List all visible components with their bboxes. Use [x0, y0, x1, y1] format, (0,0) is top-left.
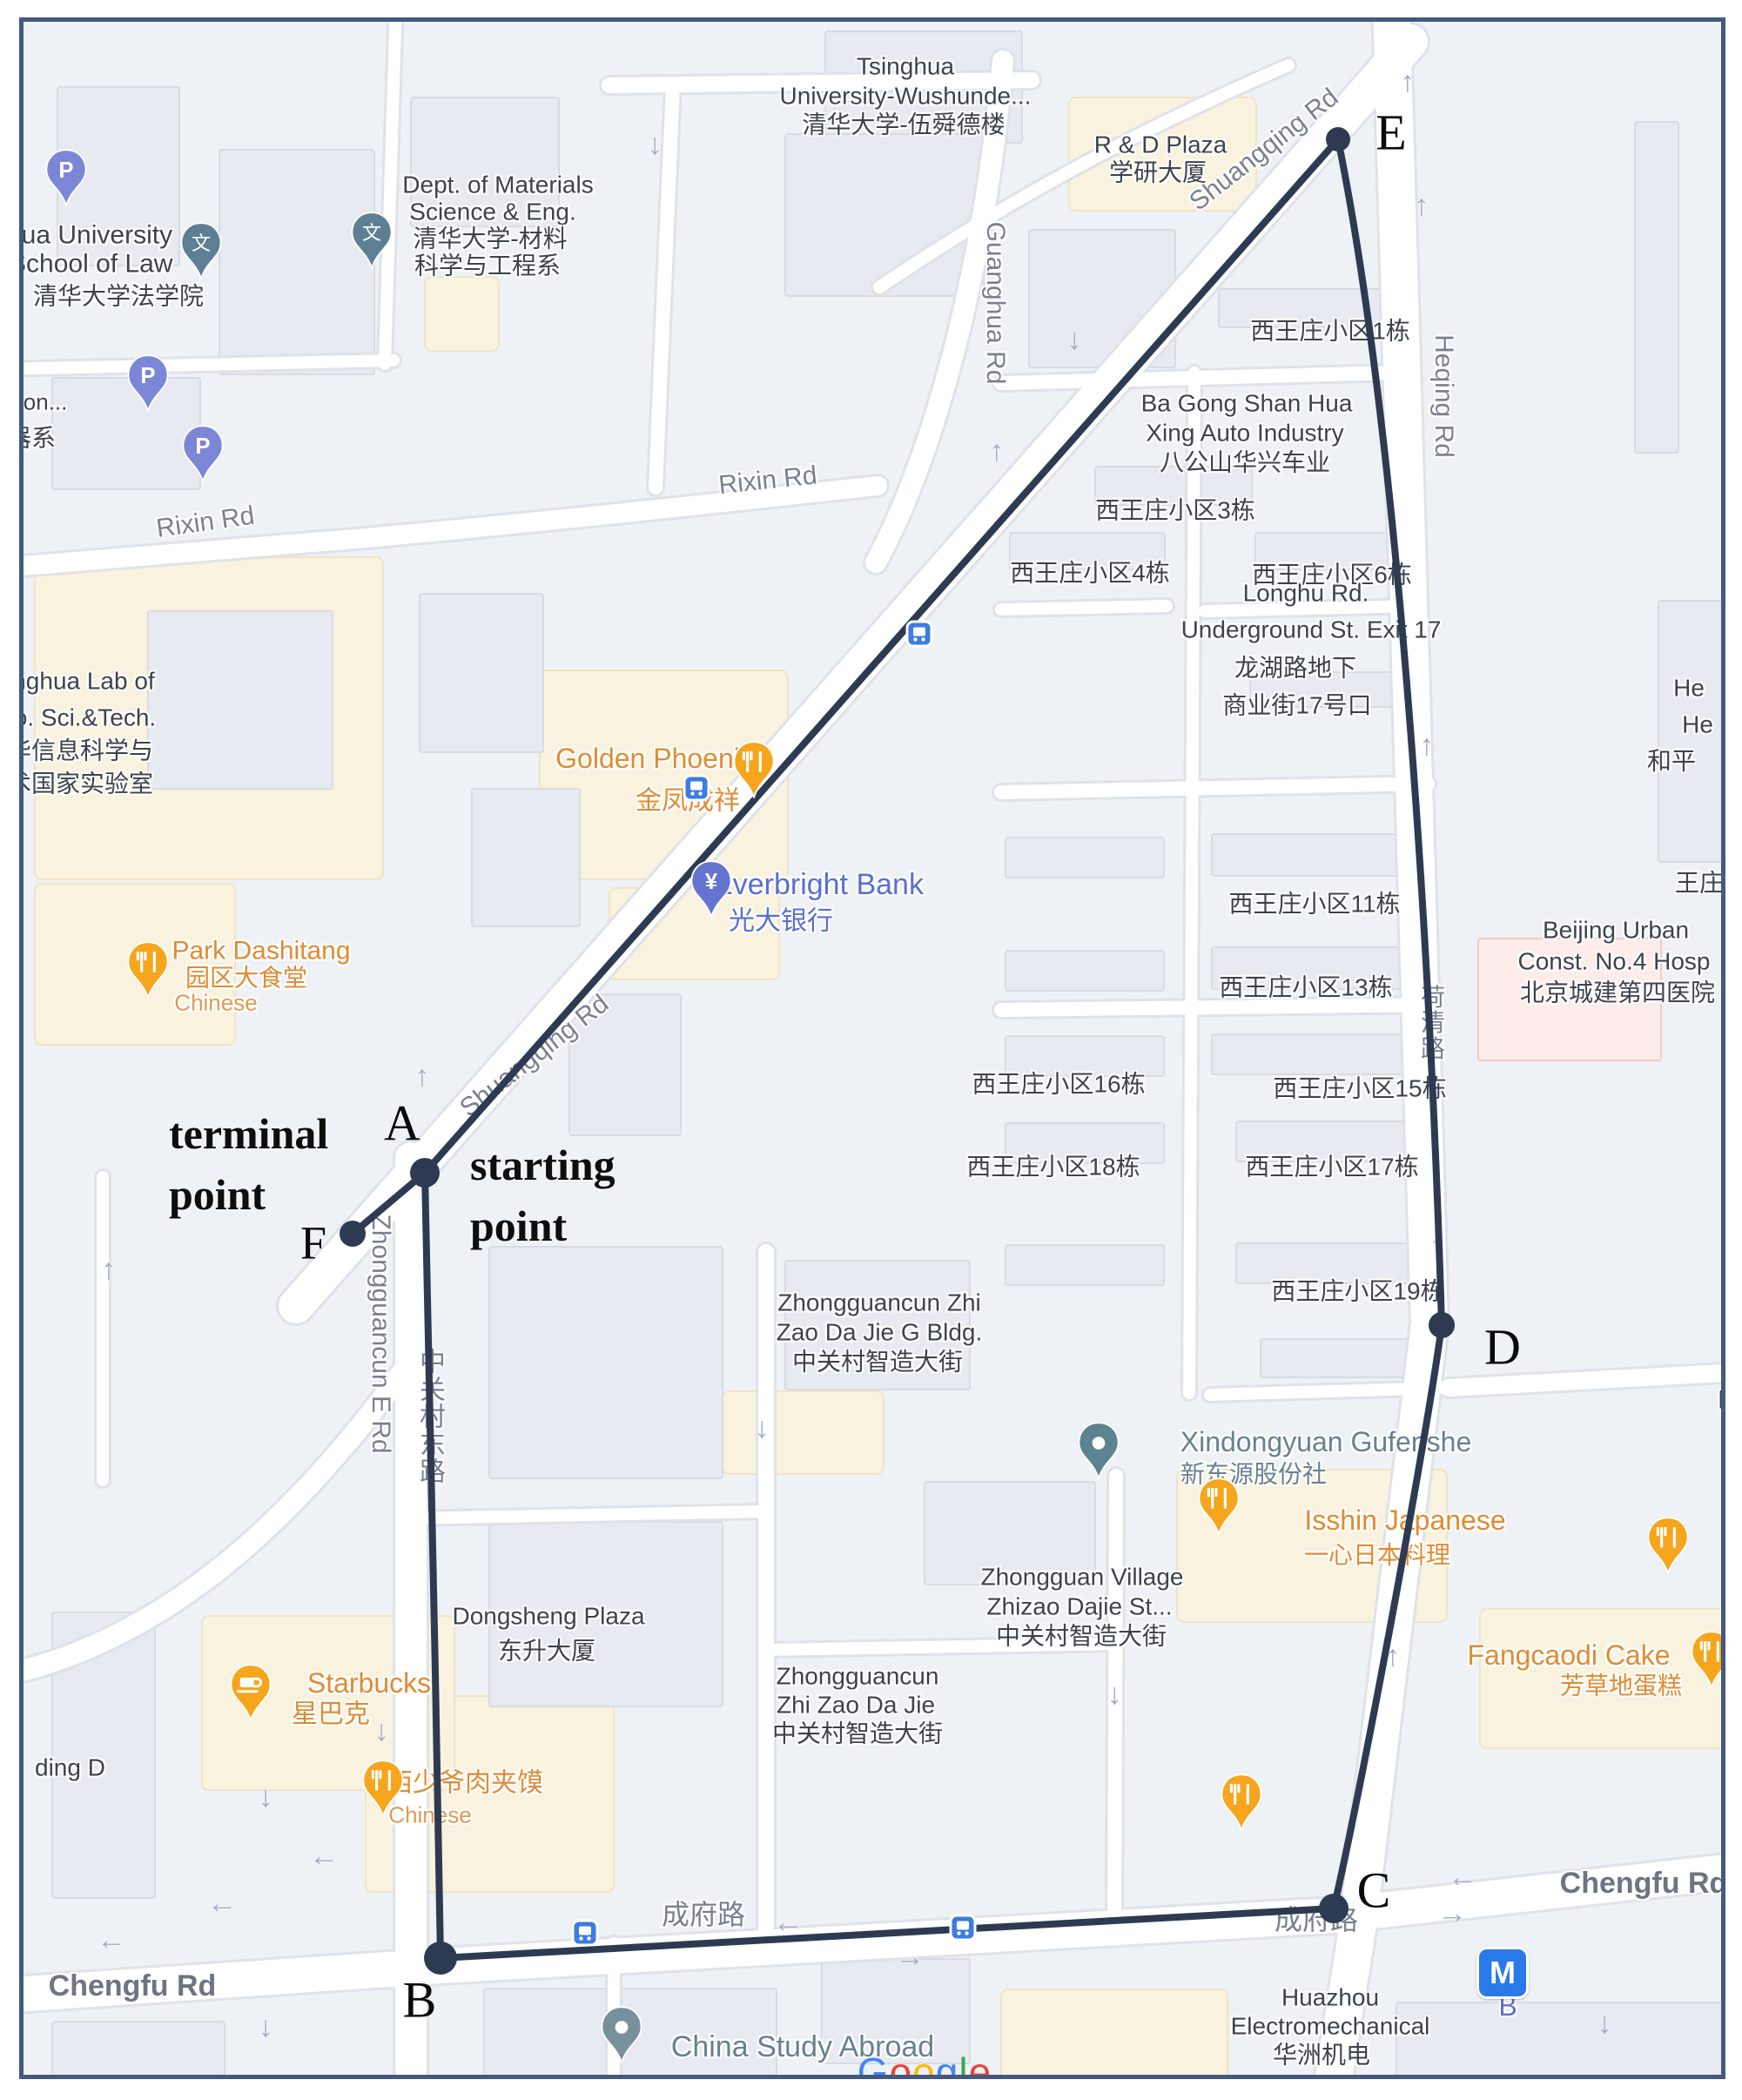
route-point-label-C: C: [1357, 1865, 1391, 1918]
route-point-label-B: B: [403, 1975, 437, 2028]
note-label: terminal: [169, 1111, 328, 1157]
annotation-layer: ABCDEFterminalpointstartingpoint: [19, 17, 1725, 2079]
route-point-label-E: E: [1375, 107, 1406, 160]
route-point-label-D: D: [1484, 1322, 1521, 1375]
route-point-label-A: A: [384, 1098, 420, 1151]
map: →→→→→→→→→→→→→→→→→→→→→→→ Rixin RdRixin Rd…: [19, 17, 1725, 2079]
note-label: point: [169, 1172, 266, 1218]
note-label: point: [470, 1203, 567, 1249]
route-point-label-F: F: [300, 1219, 326, 1269]
note-label: starting: [470, 1142, 615, 1188]
